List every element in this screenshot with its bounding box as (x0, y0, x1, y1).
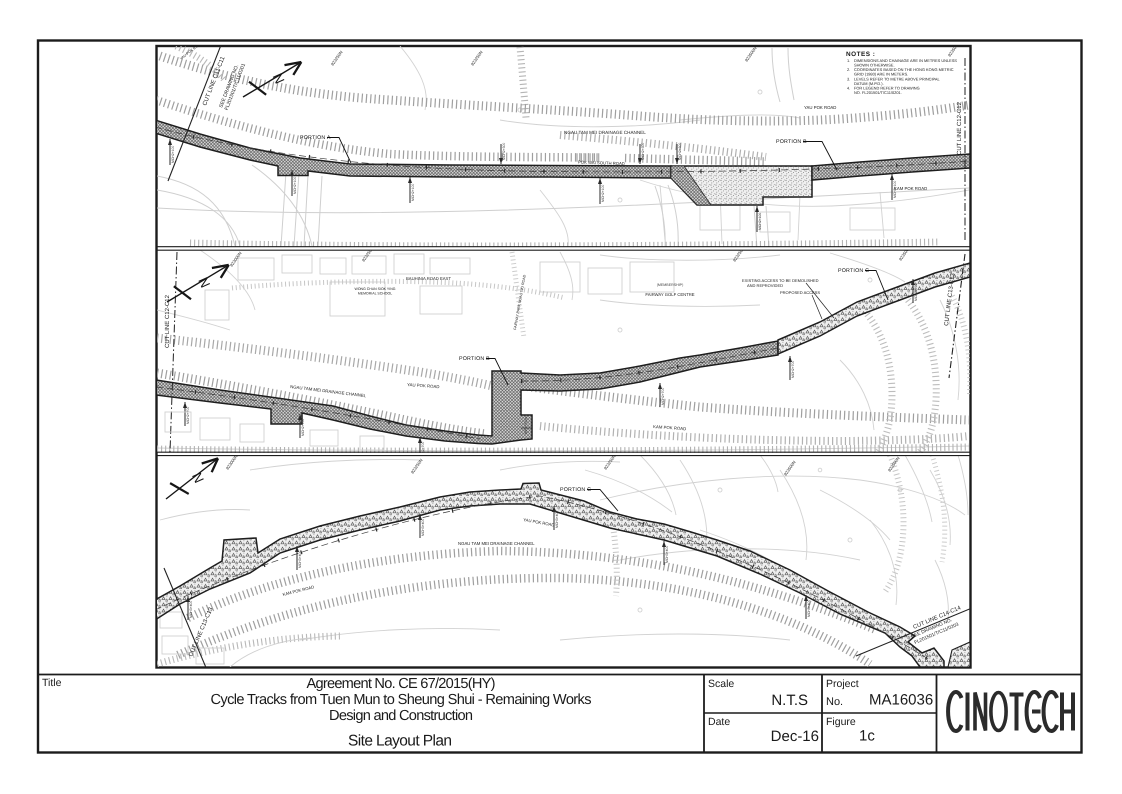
svg-text:3.: 3. (847, 76, 850, 81)
svg-text:MCH2+300: MCH2+300 (502, 143, 506, 160)
svg-text:MCH2+700: MCH2+700 (301, 419, 305, 436)
svg-text:MCH2+300: MCH2+300 (678, 143, 682, 160)
svg-text:Dec-16: Dec-16 (771, 728, 819, 745)
svg-text:Site Layout Plan: Site Layout Plan (348, 733, 452, 750)
svg-text:PROPOSED ACCESS: PROPOSED ACCESS (780, 290, 820, 295)
svg-text:MCH2+700: MCH2+700 (186, 407, 190, 424)
svg-text:MA16036: MA16036 (869, 692, 933, 709)
svg-text:FAIRWAY GOLF CENTRE: FAIRWAY GOLF CENTRE (645, 292, 694, 297)
svg-text:MCH2+700: MCH2+700 (914, 284, 918, 301)
svg-text:MEMORIAL SCHOOL: MEMORIAL SCHOOL (358, 292, 392, 296)
svg-text:PORTION C: PORTION C (838, 268, 869, 274)
svg-text:NGAU TAM MEI DRAINAGE CHANNEL: NGAU TAM MEI DRAINAGE CHANNEL (458, 541, 535, 546)
svg-text:Scale: Scale (708, 678, 734, 690)
svg-text:WONG CHAN SIOK YING: WONG CHAN SIOK YING (355, 287, 396, 291)
svg-text:YAU POK ROAD: YAU POK ROAD (804, 105, 836, 110)
svg-text:NGAU TAM MEI DRAINAGE CHANNEL: NGAU TAM MEI DRAINAGE CHANNEL (564, 130, 646, 135)
svg-text:MCH2+700: MCH2+700 (661, 388, 665, 405)
svg-text:Agreement No. CE 67/2015(HY): Agreement No. CE 67/2015(HY) (307, 676, 496, 692)
svg-text:2.: 2. (847, 67, 850, 72)
svg-text:MCH3+400: MCH3+400 (555, 511, 559, 528)
svg-text:PORTION A: PORTION A (300, 135, 331, 141)
svg-text:Design and Construction: Design and Construction (329, 708, 473, 724)
svg-text:1.: 1. (847, 58, 850, 63)
svg-text:4.: 4. (847, 86, 850, 91)
svg-text:MCH3+400: MCH3+400 (807, 600, 811, 617)
svg-text:Date: Date (708, 716, 730, 728)
svg-text:MCH2+700: MCH2+700 (791, 361, 795, 378)
svg-text:(MEMBERSHIP): (MEMBERSHIP) (657, 283, 684, 287)
svg-text:PORTION C: PORTION C (560, 487, 591, 493)
svg-text:MCH2+300: MCH2+300 (641, 143, 645, 160)
svg-text:MCH3+400: MCH3+400 (665, 546, 669, 563)
svg-text:No.: No. (826, 696, 843, 708)
svg-text:KAM POK ROAD: KAM POK ROAD (894, 186, 927, 191)
svg-text:Title: Title (42, 677, 62, 689)
svg-text:MCH2+100: MCH2+100 (758, 213, 762, 230)
svg-text:PORTION B: PORTION B (459, 356, 490, 362)
svg-text:MP2+700m: MP2+700m (524, 416, 528, 434)
svg-text:MCH2+100: MCH2+100 (293, 177, 297, 194)
svg-text:N.T.S: N.T.S (771, 692, 808, 709)
svg-text:CUT LINE C12-C12: CUT LINE C12-C12 (956, 101, 963, 155)
svg-text:MCH2+100: MCH2+100 (411, 184, 415, 201)
svg-text:1c: 1c (859, 728, 875, 745)
svg-text:Cycle Tracks from Tuen Mun to: Cycle Tracks from Tuen Mun to Sheung Shu… (211, 692, 592, 708)
svg-text:Project: Project (826, 678, 859, 690)
svg-text:MCH2+100: MCH2+100 (601, 185, 605, 202)
svg-text:MCH3+400: MCH3+400 (421, 519, 425, 536)
svg-text:PORTION B: PORTION B (776, 139, 807, 145)
svg-text:MCH2+100: MCH2+100 (171, 146, 175, 163)
svg-text:AND REPROVIDED: AND REPROVIDED (747, 283, 783, 288)
svg-text:MCH3+400: MCH3+400 (298, 551, 302, 568)
svg-text:BAUHINIA ROAD EAST: BAUHINIA ROAD EAST (406, 276, 451, 281)
svg-text:NOTES :: NOTES : (846, 51, 875, 58)
svg-text:Figure: Figure (826, 716, 856, 728)
svg-text:NO. FL201501/T/C11/0201.: NO. FL201501/T/C11/0201. (854, 90, 902, 95)
svg-text:MCH3+400: MCH3+400 (189, 601, 193, 618)
